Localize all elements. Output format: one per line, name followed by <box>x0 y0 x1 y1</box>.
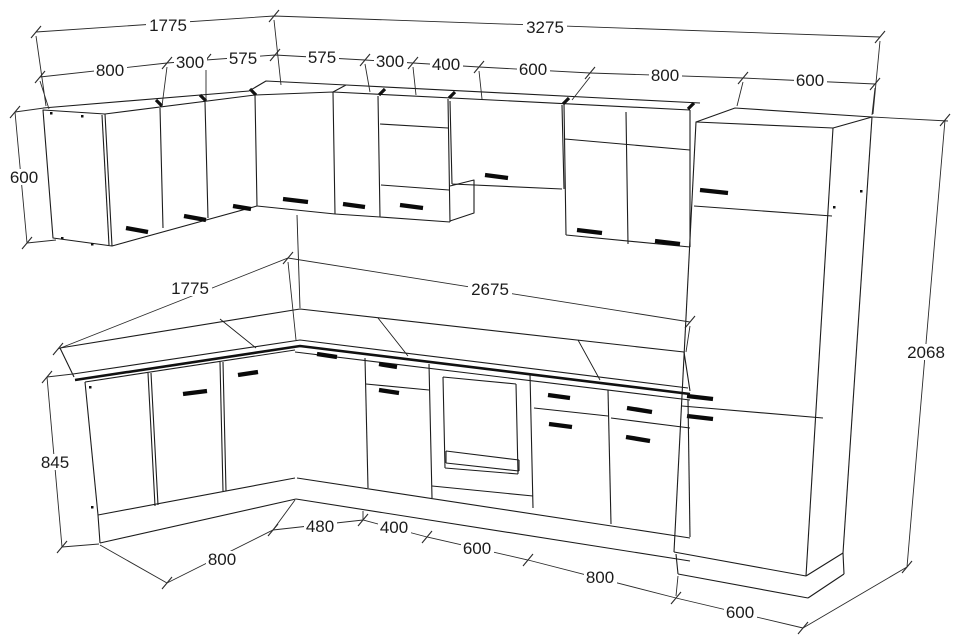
base-cabinets-right-run <box>295 352 690 561</box>
dim-wall-height: 600 <box>8 168 41 187</box>
base-door-handle <box>549 424 572 427</box>
base-corner-door-480-divider <box>365 358 368 488</box>
tall-cabinet-600 <box>674 108 872 598</box>
tall-cabinet-front-left-edge <box>674 122 696 552</box>
dim-wall-cab-7: 800 <box>649 66 682 85</box>
countertop-back-edges <box>60 309 684 352</box>
wall-cabinets-right-run <box>333 85 700 247</box>
wall-door-handle <box>655 241 680 244</box>
svg-text:480: 480 <box>306 517 334 536</box>
dim-wall-cab-3: 575 <box>306 48 339 67</box>
dim-base-3: 600 <box>461 539 494 558</box>
base-left-end-edge <box>85 382 98 515</box>
svg-text:800: 800 <box>586 568 614 587</box>
dim-wall-cab-0: 800 <box>94 61 127 80</box>
kitchen-drawing-canvas: 1775 3275 800 300 575 575 300 400 600 80… <box>0 0 960 639</box>
dim-base-height: 845 <box>38 453 72 472</box>
base-right-top-edge <box>295 352 690 400</box>
base-left-top-edge <box>85 350 295 382</box>
svg-text:400: 400 <box>380 518 408 537</box>
tall-cabinet-top-face <box>696 108 872 128</box>
base-door-handle <box>626 437 650 441</box>
dim-wall-cab-1: 300 <box>174 53 207 72</box>
wall-door-handle <box>343 204 365 207</box>
corner-wall-door-handle <box>283 199 308 202</box>
dim-wall-cab-8: 600 <box>794 71 827 90</box>
base-left-panel-gap <box>148 373 158 506</box>
base-left-plinth <box>98 499 296 543</box>
base-door-handle <box>379 390 399 393</box>
base-door-handle <box>317 354 337 357</box>
drawer-handle <box>379 364 397 367</box>
oven-cavity-interior <box>443 377 518 474</box>
wall-door-handle <box>126 228 148 232</box>
hinge-dot <box>81 115 84 118</box>
wall-left-door-dividers <box>160 102 208 228</box>
svg-text:575: 575 <box>308 48 336 67</box>
svg-text:600: 600 <box>796 71 824 90</box>
wall-right-top-front-edge <box>333 92 690 110</box>
countertop <box>60 309 690 394</box>
dim-base-2: 400 <box>378 518 411 537</box>
svg-text:800: 800 <box>96 61 124 80</box>
wall-left-end-panel <box>43 110 112 246</box>
base-right-end-edge <box>688 400 690 537</box>
svg-text:2675: 2675 <box>471 280 509 299</box>
svg-text:300: 300 <box>176 53 204 72</box>
wall-left-bottom-edge <box>112 206 257 246</box>
base-door-handle <box>238 372 258 375</box>
svg-text:845: 845 <box>41 453 69 472</box>
svg-text:575: 575 <box>229 49 257 68</box>
drawer-handle <box>627 408 652 412</box>
svg-text:800: 800 <box>208 550 236 569</box>
dim-base-0: 800 <box>206 550 239 569</box>
corner-wall-front-face <box>255 92 335 214</box>
hinge-dot <box>50 112 53 115</box>
wall-door-handle <box>233 206 251 209</box>
dim-base-5: 600 <box>724 603 757 622</box>
dimension-labels: 1775 3275 800 300 575 575 300 400 600 80… <box>8 16 948 622</box>
oven-cavity-sill <box>432 486 533 496</box>
oven-cavity-shelf <box>446 451 519 471</box>
svg-text:2068: 2068 <box>907 343 945 362</box>
dim-counter-left: 1775 <box>168 279 212 298</box>
wall-door-handle <box>400 205 423 208</box>
base-400-drawer-line <box>366 384 429 390</box>
svg-text:300: 300 <box>376 52 404 71</box>
svg-text:400: 400 <box>432 55 460 74</box>
drawer-handle <box>548 395 570 398</box>
oven-cavity-600 <box>429 364 533 508</box>
dim-wall-total-left: 1775 <box>146 16 190 35</box>
hinge-dot <box>89 386 92 389</box>
tall-cabinet-back-right-edge <box>843 117 872 553</box>
hinge-dot <box>61 237 64 240</box>
base-door-handle <box>183 391 207 394</box>
wall-cabinet-800 <box>564 104 690 247</box>
svg-text:600: 600 <box>10 168 38 187</box>
kitchen-plan-svg: 1775 3275 800 300 575 575 300 400 600 80… <box>0 0 960 639</box>
hinge-dot <box>91 506 94 509</box>
wall-left-top-front-edge <box>105 95 255 114</box>
dimension-extension-lines <box>15 20 948 596</box>
corner-wall-cabinet <box>249 81 346 308</box>
tall-cabinet-handle <box>687 416 713 419</box>
wall-cabinet-400-side-panel <box>450 180 474 221</box>
wall-cabinets-left-run <box>43 89 257 246</box>
dim-counter-right: 2675 <box>468 280 512 299</box>
dim-wall-cab-2: 575 <box>227 49 260 68</box>
svg-text:1775: 1775 <box>149 16 187 35</box>
dim-wall-cab-6: 600 <box>517 60 550 79</box>
svg-text:800: 800 <box>651 66 679 85</box>
room-corner-line <box>297 215 300 308</box>
dim-total-height: 2068 <box>904 343 948 362</box>
fixing-dots <box>50 112 94 509</box>
dim-wall-total-right: 3275 <box>523 18 567 37</box>
wall-door-handle <box>184 216 206 220</box>
dim-wall-cab-5: 400 <box>430 55 463 74</box>
svg-text:600: 600 <box>463 539 491 558</box>
tall-cabinet-handle <box>687 396 713 399</box>
tall-cabinet-bottom-edges <box>674 552 843 576</box>
tall-cabinet-door-splits <box>682 206 832 418</box>
hinge-dot <box>91 243 94 246</box>
hinge-dot <box>833 206 836 209</box>
base-cabinets-left-run <box>85 350 296 543</box>
tall-cabinet-handle <box>700 190 728 193</box>
dim-base-1: 480 <box>304 517 337 536</box>
wall-right-top-back-edge <box>346 85 700 103</box>
base-left-bottom-edge <box>98 478 295 515</box>
base-left-door-divider <box>220 362 226 491</box>
wall-door-handle <box>577 230 602 233</box>
tall-cabinet-front-right-edge <box>806 128 833 576</box>
hood-door-handle <box>485 175 508 178</box>
svg-text:1775: 1775 <box>171 279 209 298</box>
tall-cabinet-plinth <box>676 553 844 598</box>
corner-wall-top-face <box>249 81 346 92</box>
hinge-dot <box>860 190 863 193</box>
dim-wall-cab-4: 300 <box>374 52 407 71</box>
wall-cabinet-400 <box>380 99 450 222</box>
svg-text:3275: 3275 <box>526 18 564 37</box>
dim-base-4: 800 <box>584 568 617 587</box>
wall-right-cabinet-gap-marks <box>379 89 694 109</box>
base-800-divider <box>608 390 611 524</box>
svg-text:600: 600 <box>519 60 547 79</box>
svg-text:600: 600 <box>726 603 754 622</box>
wall-cabinet-300 <box>335 96 380 217</box>
